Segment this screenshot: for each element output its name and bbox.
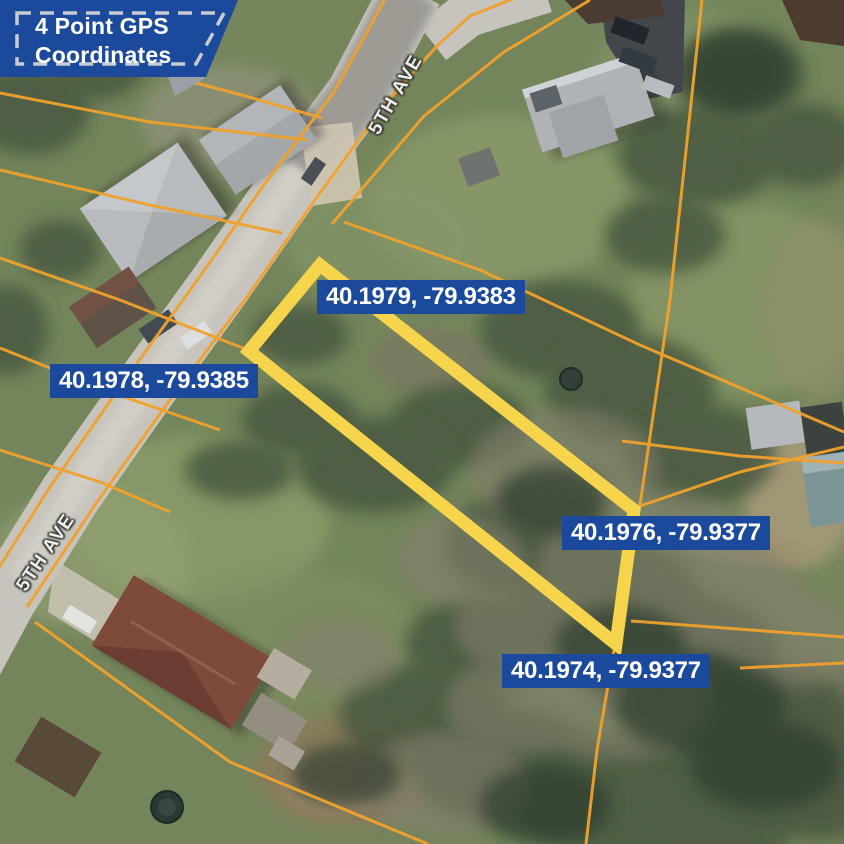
badge-title: 4 Point GPS Coordinates [35, 12, 171, 70]
coordinate-label-3: 40.1976, -79.9377 [562, 516, 770, 550]
coordinate-label-1: 40.1979, -79.9383 [317, 280, 525, 314]
map-canvas[interactable]: 5TH AVE 5TH AVE 40.1979, -79.9383 40.197… [0, 0, 844, 844]
parcel-boundary-polygon [0, 0, 844, 844]
gps-coordinates-badge: 4 Point GPS Coordinates [0, 0, 250, 100]
coordinate-label-4: 40.1974, -79.9377 [502, 654, 710, 688]
badge-title-line2: Coordinates [35, 41, 171, 70]
coordinate-label-2: 40.1978, -79.9385 [50, 364, 258, 398]
badge-title-line1: 4 Point GPS [35, 12, 171, 41]
